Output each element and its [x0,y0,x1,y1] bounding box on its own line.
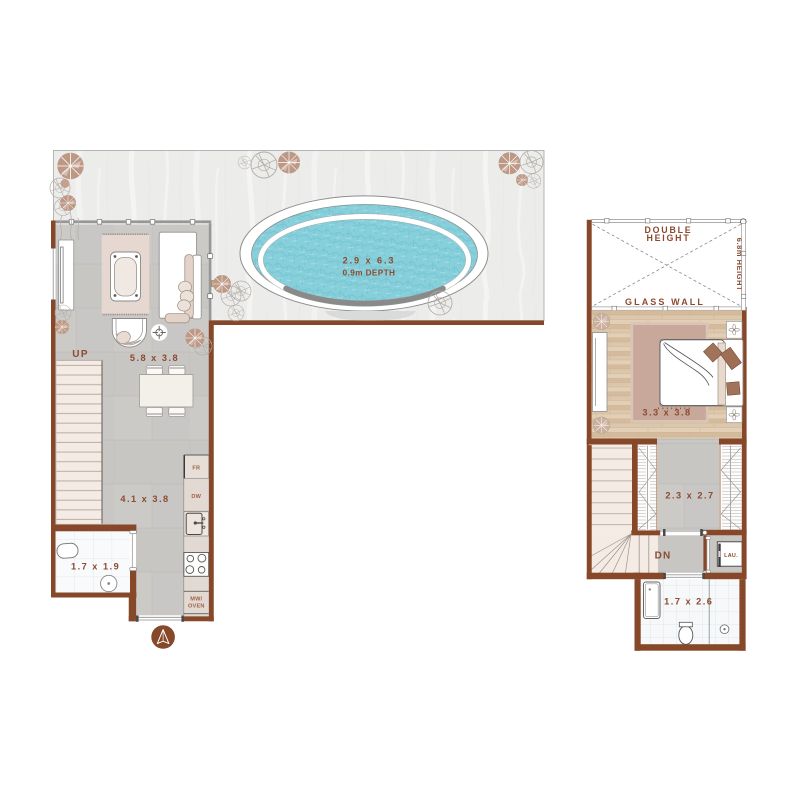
svg-text:GLASS WALL: GLASS WALL [625,297,705,307]
svg-text:DW: DW [191,494,201,500]
svg-text:1.7 x 2.6: 1.7 x 2.6 [664,597,713,607]
svg-text:HEIGHT: HEIGHT [646,233,690,243]
svg-text:0.9m DEPTH: 0.9m DEPTH [343,269,396,278]
svg-text:5.8 x 3.8: 5.8 x 3.8 [130,353,179,363]
svg-text:OVEN: OVEN [188,604,205,610]
svg-text:FR: FR [192,466,200,472]
svg-text:MW/: MW/ [190,597,202,603]
svg-text:3.3 x 3.8: 3.3 x 3.8 [642,408,691,418]
svg-text:2.3 x 2.7: 2.3 x 2.7 [665,491,714,501]
svg-text:2.9 x 6.3: 2.9 x 6.3 [343,256,396,266]
svg-text:4.1 x 3.8: 4.1 x 3.8 [120,494,169,504]
svg-text:LAU.: LAU. [724,553,738,559]
svg-text:1.7 x 1.9: 1.7 x 1.9 [71,562,120,572]
svg-text:DN: DN [655,551,672,562]
svg-text:UP: UP [72,349,89,360]
